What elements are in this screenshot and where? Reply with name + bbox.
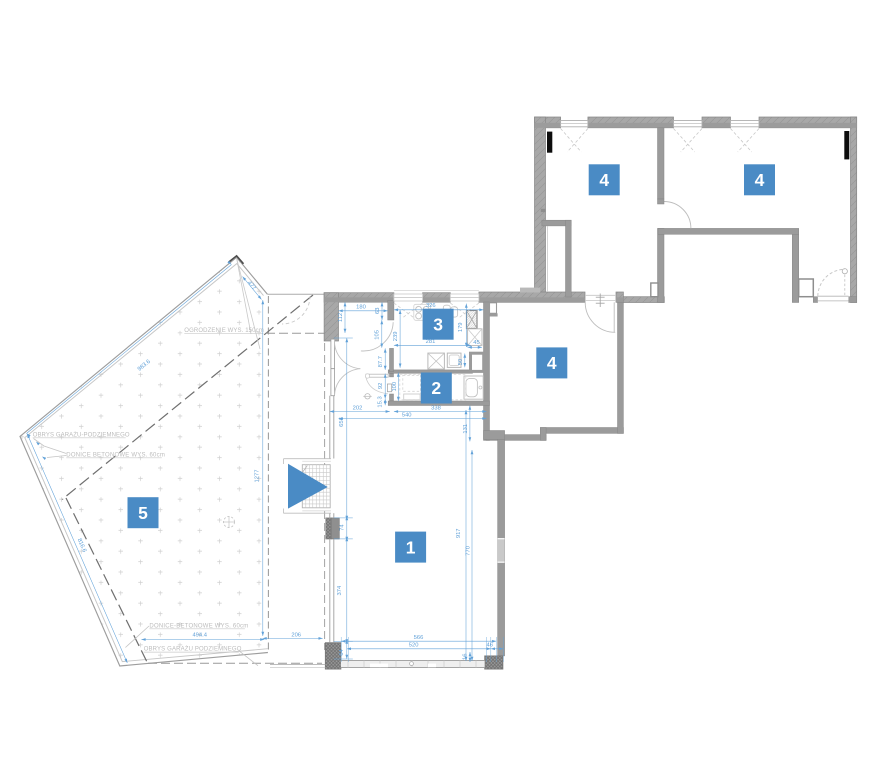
svg-text:46: 46 bbox=[486, 642, 492, 648]
svg-text:105: 105 bbox=[374, 330, 380, 340]
svg-text:74: 74 bbox=[340, 524, 346, 531]
svg-text:92: 92 bbox=[378, 383, 384, 389]
svg-text:494.4: 494.4 bbox=[192, 633, 207, 639]
svg-text:326: 326 bbox=[426, 303, 436, 309]
svg-text:4: 4 bbox=[599, 170, 609, 190]
svg-text:64: 64 bbox=[339, 649, 345, 656]
svg-text:16: 16 bbox=[462, 653, 468, 659]
svg-text:917: 917 bbox=[456, 528, 462, 538]
svg-text:179: 179 bbox=[458, 322, 464, 332]
svg-text:1277: 1277 bbox=[255, 470, 261, 483]
svg-text:87.7: 87.7 bbox=[378, 356, 384, 367]
svg-text:OBRYS GARAŻU-PODZIEMNEGO: OBRYS GARAŻU-PODZIEMNEGO bbox=[33, 431, 130, 438]
svg-text:202: 202 bbox=[353, 405, 363, 411]
svg-text:239: 239 bbox=[393, 332, 399, 342]
svg-text:520: 520 bbox=[409, 643, 419, 649]
svg-text:OGRODZENIE WYS. 150cm: OGRODZENIE WYS. 150cm bbox=[184, 328, 264, 334]
svg-text:15.3: 15.3 bbox=[378, 396, 384, 407]
svg-text:338: 338 bbox=[431, 405, 441, 411]
svg-text:2: 2 bbox=[431, 378, 441, 398]
svg-text:180: 180 bbox=[356, 304, 366, 310]
svg-text:566: 566 bbox=[414, 635, 424, 641]
svg-text:540: 540 bbox=[402, 412, 412, 418]
svg-text:281: 281 bbox=[426, 339, 436, 345]
svg-text:5: 5 bbox=[138, 503, 148, 523]
svg-text:4: 4 bbox=[755, 170, 765, 190]
svg-text:112: 112 bbox=[338, 313, 344, 322]
svg-text:3: 3 bbox=[433, 314, 443, 334]
svg-text:DONICE BETONOWE WYS. 60cm: DONICE BETONOWE WYS. 60cm bbox=[66, 452, 165, 458]
svg-text:206: 206 bbox=[291, 633, 301, 639]
svg-text:DONICE-BETONOWE WYS. 60cm: DONICE-BETONOWE WYS. 60cm bbox=[149, 623, 248, 629]
svg-text:100: 100 bbox=[392, 382, 398, 392]
svg-text:1: 1 bbox=[406, 537, 416, 557]
svg-text:OBRYS GARAŻU PODZIEMNEGO: OBRYS GARAŻU PODZIEMNEGO bbox=[144, 646, 242, 653]
svg-text:50: 50 bbox=[458, 359, 464, 365]
svg-text:374: 374 bbox=[337, 585, 343, 595]
svg-text:4: 4 bbox=[547, 353, 557, 373]
svg-text:45: 45 bbox=[473, 340, 479, 346]
svg-text:770: 770 bbox=[465, 546, 471, 556]
